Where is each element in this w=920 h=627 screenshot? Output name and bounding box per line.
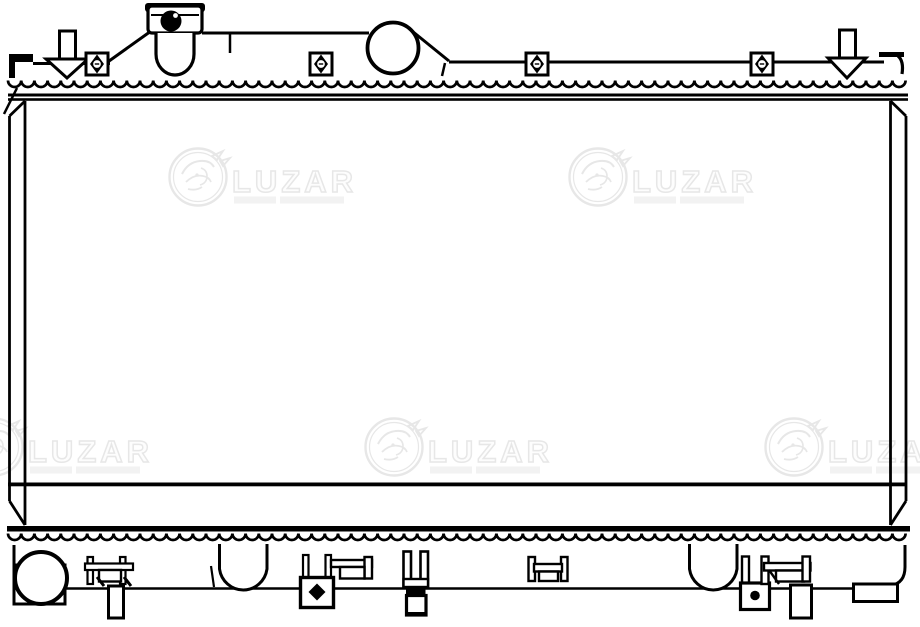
radiator-technical-drawing: LUZAR [0, 0, 920, 627]
tank-shoulder-diagonal-left [107, 33, 149, 63]
right-foot-plate [854, 584, 898, 602]
top-header-line-2 [8, 98, 908, 101]
bracket-box-base [405, 612, 427, 617]
bottom-header-bar [7, 526, 910, 532]
bracket-clip [539, 572, 558, 582]
inlet-port-circle [368, 23, 419, 74]
tank-right-edge [891, 545, 905, 586]
mount-bracket-4 [529, 557, 568, 581]
tank-rib-tick [211, 566, 214, 587]
mount-pin-left [60, 31, 76, 59]
bolt-bracket-1 [86, 53, 108, 75]
rail-clip [776, 571, 804, 582]
left-plate-chamfer [10, 101, 26, 116]
watermark [170, 149, 358, 206]
watermark [570, 149, 758, 206]
bolt-bracket-3 [526, 53, 548, 75]
watermark [366, 419, 554, 476]
drain-pocket-left [220, 544, 268, 590]
watermark-layer [0, 149, 920, 476]
mount-pin-right [840, 30, 856, 58]
filler-cap-bolt-highlight [173, 13, 178, 18]
core-bottom-line [8, 483, 907, 487]
watermark [766, 419, 920, 476]
corner-bracket-leg [898, 56, 903, 74]
bolt-bracket-4 [751, 53, 773, 75]
rail-end-post [803, 557, 811, 582]
top-gasket-serration [8, 81, 906, 88]
top-left-corner-bracket [9, 54, 33, 78]
bottom-tank [14, 544, 905, 618]
right-plate-flare [891, 501, 907, 525]
top-header-line-1 [8, 94, 908, 97]
right-plate-chamfer [891, 101, 907, 116]
bolt-bracket-2 [310, 53, 332, 75]
top-tank [9, 3, 904, 78]
bracket-stem [791, 585, 812, 618]
arrow-marker-left [46, 59, 88, 78]
bracket-stem [109, 586, 124, 618]
left-plate-flare [10, 501, 26, 525]
filler-cap-bolt [161, 11, 182, 32]
filler-neck [156, 33, 194, 75]
arrow-marker-right [828, 58, 866, 78]
tank-seam-tick-right [442, 63, 445, 76]
filler-cap [145, 3, 205, 33]
bottom-gasket-serration [8, 534, 906, 541]
mount-bracket-2 [301, 555, 373, 608]
outlet-port-circle [15, 552, 67, 604]
watermark [0, 419, 153, 476]
rail-clip [340, 567, 365, 579]
pad-round-bolt [750, 591, 760, 601]
drawing-canvas: LUZAR [0, 0, 920, 627]
bracket-crossbar [404, 579, 429, 587]
drain-pocket-right [690, 544, 738, 590]
mount-bracket-3 [404, 552, 429, 617]
bracket-pad [99, 570, 121, 582]
